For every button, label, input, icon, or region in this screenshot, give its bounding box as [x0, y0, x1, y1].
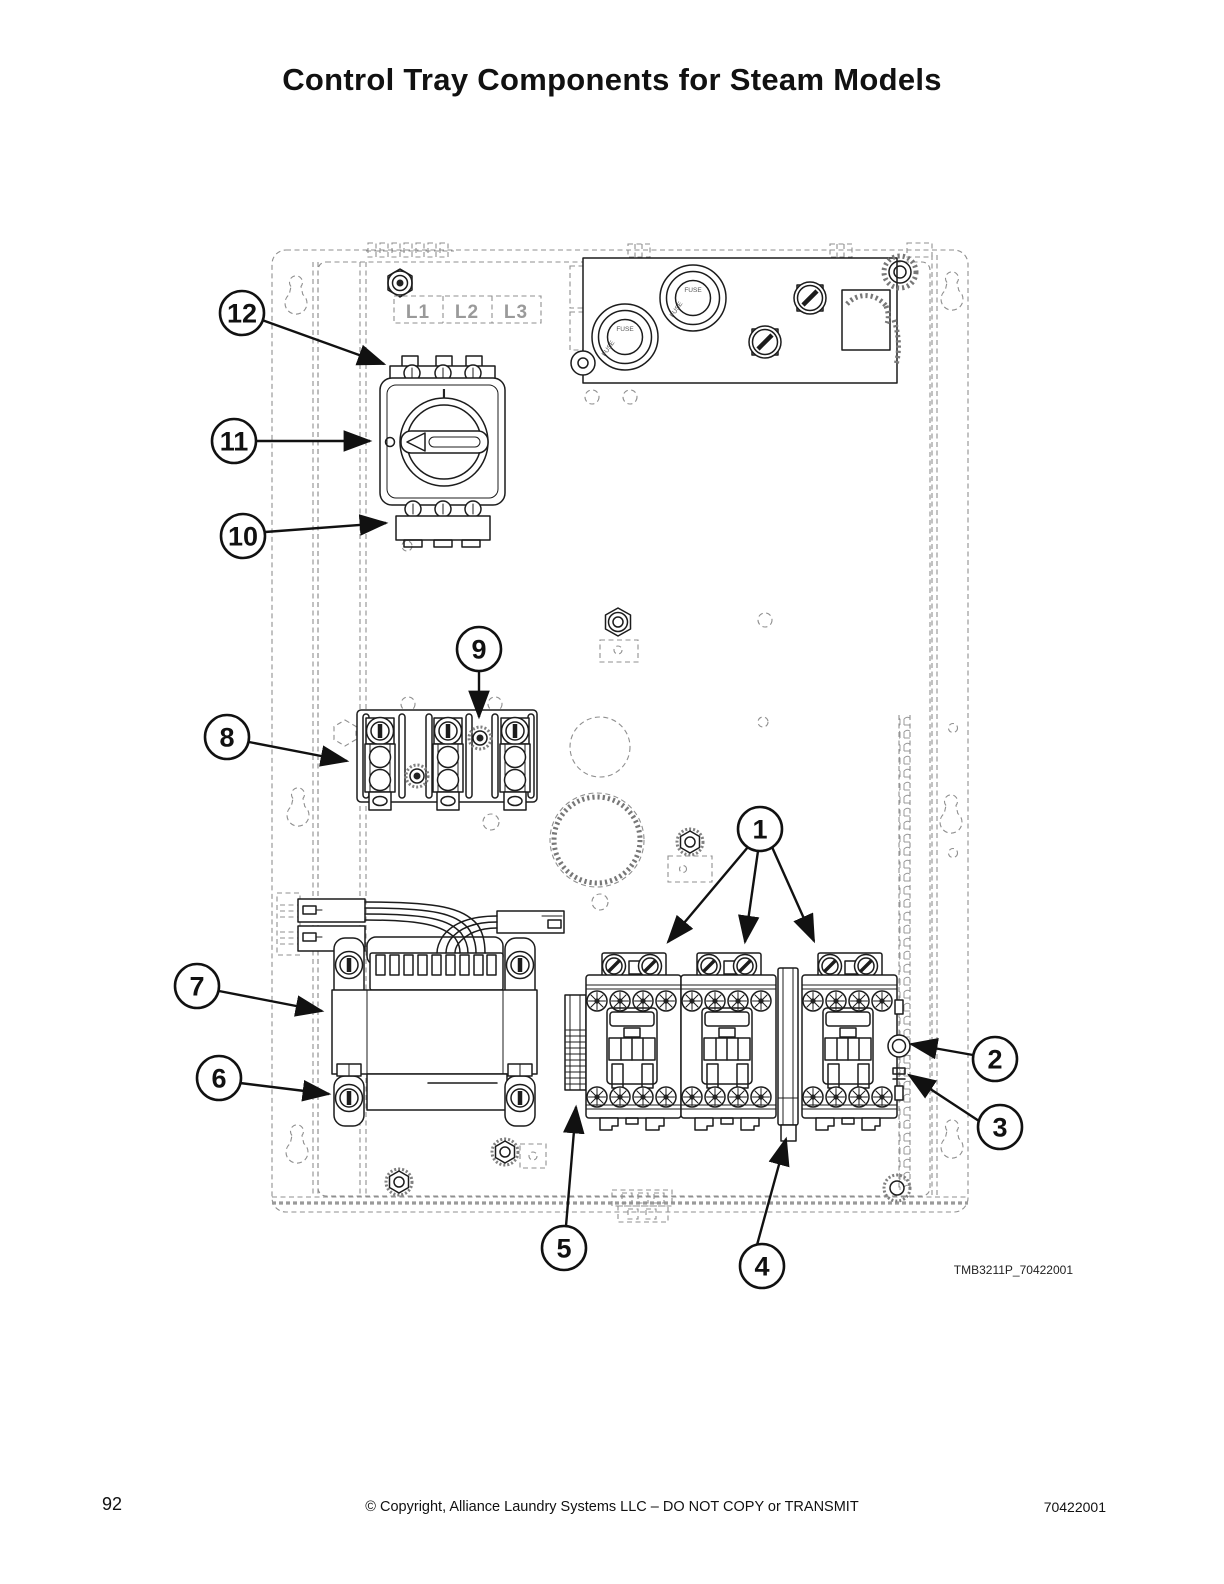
terminal-strip [500, 718, 530, 811]
transformer-core [332, 990, 537, 1074]
terminal-label-l3: L3 [504, 302, 528, 323]
terminal-label-strip: L1 L2 L3 [394, 296, 541, 323]
hex-hole [334, 720, 356, 746]
slotted-adjuster [749, 326, 781, 358]
svg-text:11: 11 [220, 427, 249, 457]
disconnect-switch-assembly: L1 L2 L3 I [366, 243, 541, 547]
footer-doc-number: 70422001 [1044, 1499, 1106, 1515]
svg-text:6: 6 [211, 1064, 226, 1094]
callout-2: 2 [911, 1037, 1017, 1081]
svg-text:2: 2 [987, 1045, 1002, 1075]
mounting-keyhole [287, 788, 309, 826]
wire-connector [298, 899, 365, 922]
mounting-screw [507, 1085, 534, 1112]
callout-3: 3 [909, 1075, 1022, 1149]
contactor [802, 953, 897, 1130]
callout-5: 5 [542, 1107, 586, 1270]
wire-duct [899, 715, 910, 1190]
svg-text:4: 4 [754, 1252, 769, 1282]
hex-bolt [386, 1169, 412, 1195]
middle-hardware [550, 608, 712, 887]
knurled-ring [550, 793, 644, 887]
fuse-holder: FUSE FUSE [660, 265, 726, 331]
svg-text:10: 10 [228, 522, 258, 552]
hex-bolt [668, 829, 712, 882]
mounting-keyhole [940, 795, 962, 833]
callout-4: 4 [740, 1139, 786, 1288]
callout-8: 8 [205, 715, 347, 761]
divider-bar [778, 968, 798, 1141]
contactor-group [565, 953, 910, 1141]
svg-text:1: 1 [752, 815, 767, 845]
callout-10: 10 [221, 514, 386, 558]
hex-nut [388, 269, 412, 297]
contactor [586, 953, 681, 1130]
hex-bolt [492, 1139, 546, 1168]
svg-text:9: 9 [471, 635, 486, 665]
svg-text:12: 12 [227, 299, 257, 329]
wire-connector [497, 911, 564, 933]
slotted-adjuster [794, 282, 826, 314]
bottom-hardware [386, 1139, 910, 1222]
figure-code: TMB3211P_70422001 [954, 1263, 1073, 1277]
mounting-screw [507, 952, 534, 979]
callout-12: 12 [220, 291, 384, 364]
fuse-label: FUSE [616, 326, 634, 333]
fuse-panel: FUSE FUSE FUSE FUSE [570, 243, 932, 383]
fuse-holder: FUSE FUSE [592, 304, 658, 370]
switch-bottom-terminal [396, 501, 490, 547]
bottom-bracket [612, 1190, 672, 1222]
rotary-disconnect-switch: I [380, 378, 505, 505]
callout-11: 11 [212, 419, 370, 463]
terminal-label-l2: L2 [455, 302, 479, 323]
control-tray-diagram: L1 L2 L3 I [0, 0, 1224, 1584]
svg-text:8: 8 [219, 723, 234, 753]
knurled-bolt [884, 256, 916, 288]
callout-9: 9 [457, 627, 501, 717]
callout-1: 1 [668, 807, 814, 942]
side-screw [888, 1035, 910, 1057]
svg-text:7: 7 [189, 972, 204, 1002]
relay-box [842, 290, 890, 350]
callout-6: 6 [197, 1056, 329, 1100]
mounting-screw [336, 1085, 363, 1112]
mounting-keyhole [285, 276, 307, 314]
mounting-keyhole [941, 272, 963, 310]
terminal-label-l1: L1 [406, 302, 430, 323]
callout-7: 7 [175, 964, 322, 1011]
aux-block [565, 995, 586, 1090]
mounting-screw [336, 952, 363, 979]
fuse-label: FUSE [684, 287, 702, 294]
svg-text:5: 5 [556, 1234, 571, 1264]
mounting-keyhole [286, 1125, 308, 1163]
footer-copyright: © Copyright, Alliance Laundry Systems LL… [0, 1499, 1224, 1515]
panel-bolt [571, 351, 595, 375]
hex-bolt [600, 608, 638, 662]
terminal-block-assembly [357, 710, 537, 810]
terminal-strip [365, 718, 395, 811]
terminal-strip [433, 718, 463, 811]
mounting-keyhole [941, 1120, 963, 1158]
panel-hole [570, 717, 630, 777]
contactor [681, 953, 776, 1130]
svg-text:3: 3 [992, 1113, 1007, 1143]
